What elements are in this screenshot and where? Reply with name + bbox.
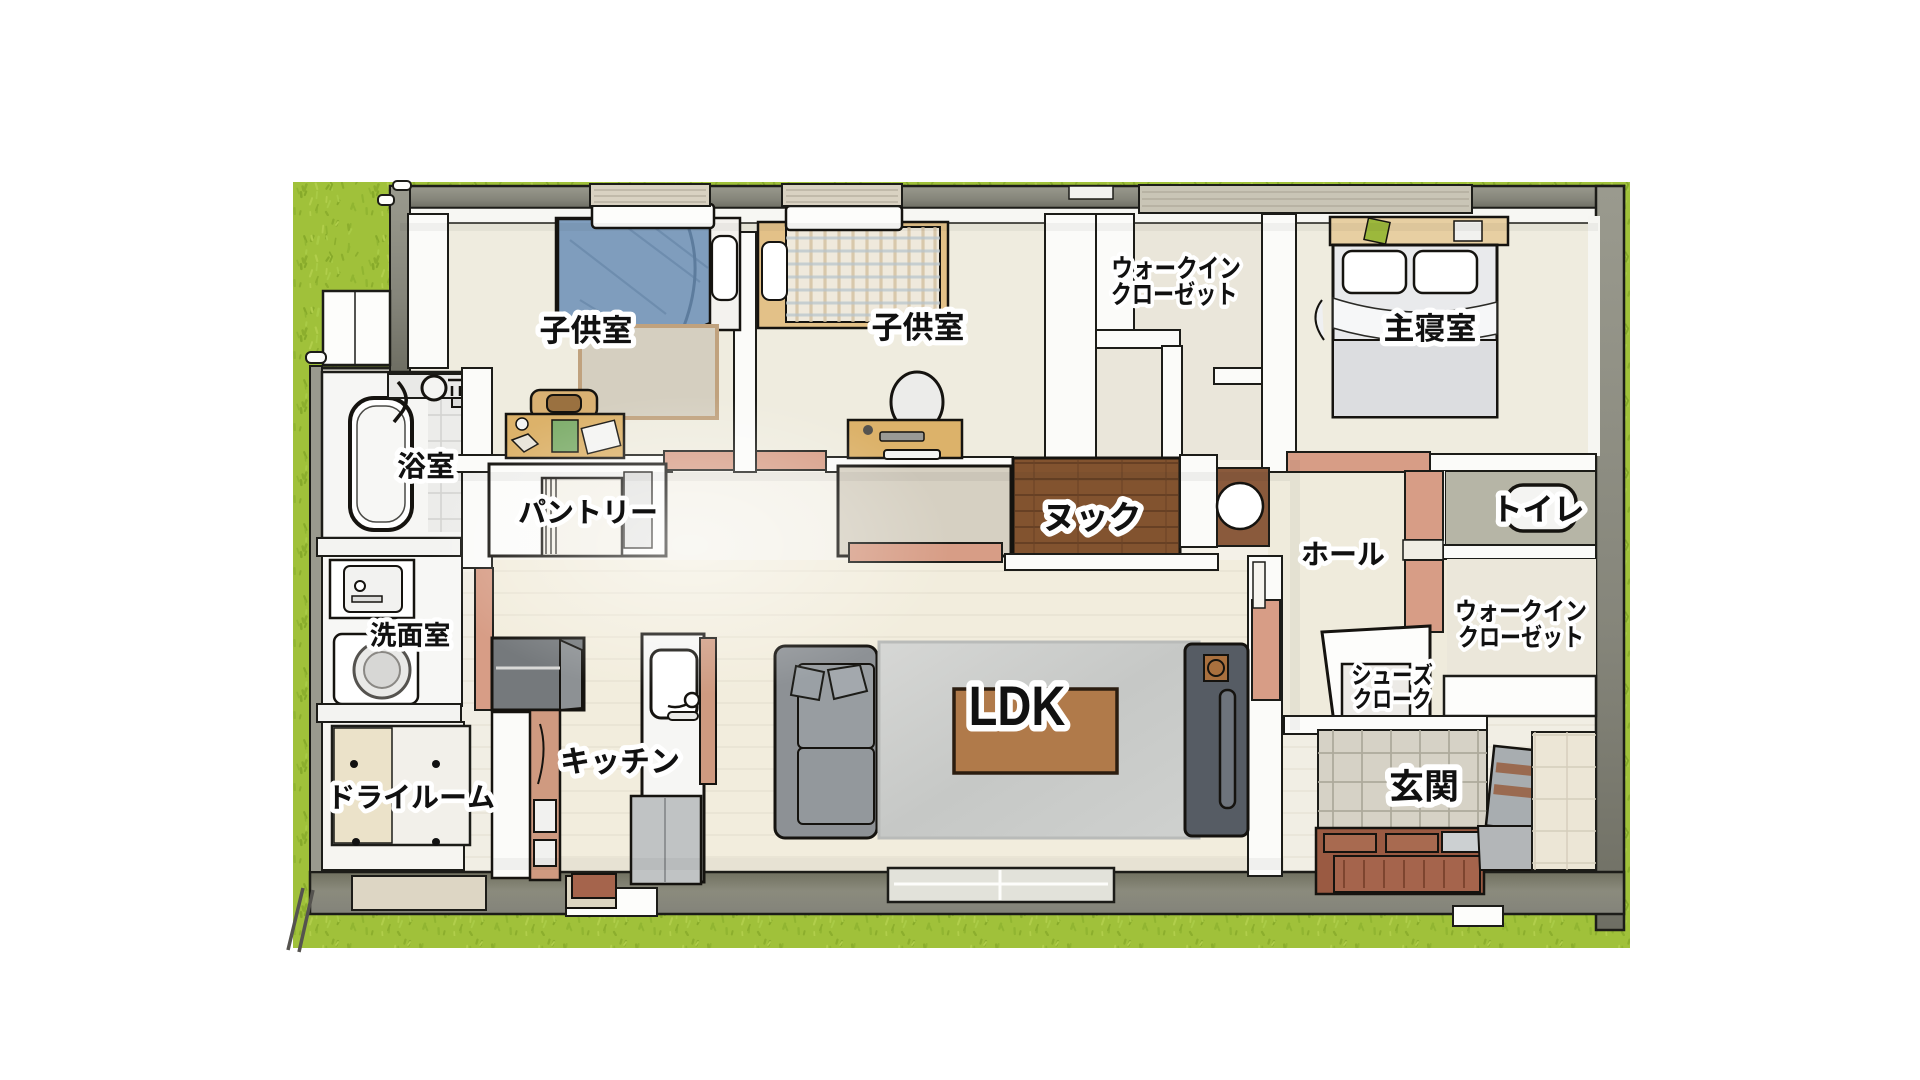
- svg-text:LDK: LDK: [969, 674, 1066, 737]
